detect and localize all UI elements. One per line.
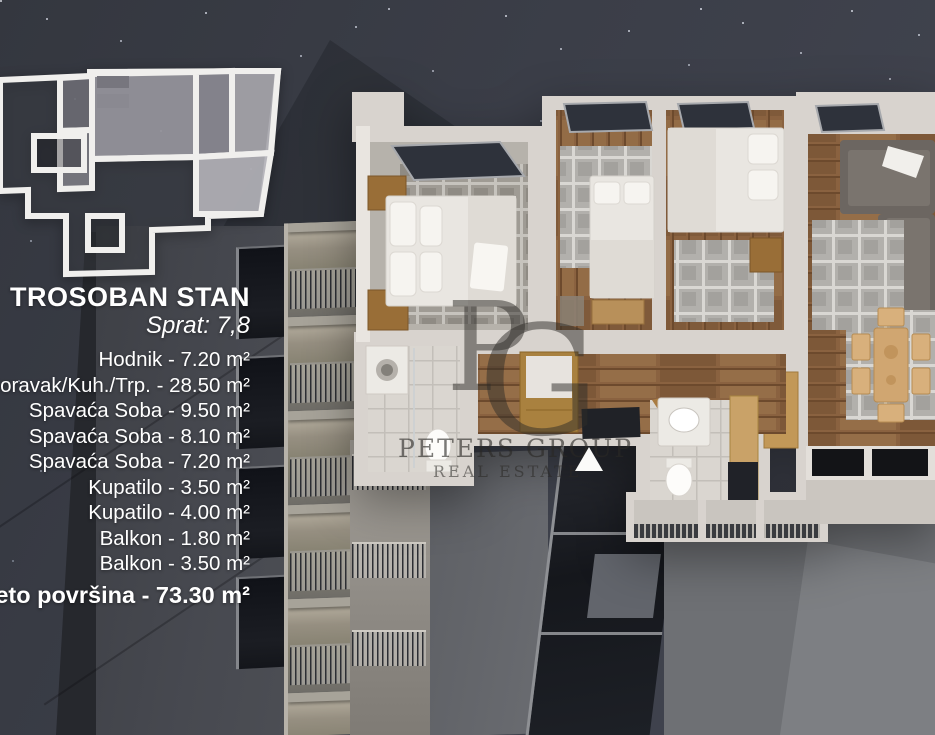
room-area-line: Balkon - 3.50 m² xyxy=(0,551,250,577)
double-bed xyxy=(668,128,784,232)
kitchen-counter xyxy=(806,446,935,524)
toilet xyxy=(666,458,692,496)
room-area-line: Balkon - 1.80 m² xyxy=(0,526,250,552)
room-area-line: ni Boravak/Kuh./Trp. - 28.50 m² xyxy=(0,373,250,399)
thumb-room xyxy=(60,76,92,131)
thumb-room xyxy=(232,71,278,155)
thumb-wall xyxy=(92,157,196,159)
watermark-tagline: REAL ESTATE xyxy=(433,462,573,481)
balcony-railing xyxy=(634,524,820,538)
bedroom-1-window xyxy=(392,142,524,180)
thumb-room xyxy=(196,153,271,214)
watermark-monogram: P G xyxy=(430,278,630,458)
thumb-room xyxy=(196,71,232,157)
thumb-top-window xyxy=(97,94,129,108)
room-area-line: Spavaća Soba - 8.10 m² xyxy=(0,424,250,450)
kitchen-sink xyxy=(872,449,928,476)
balcony-railing xyxy=(352,542,426,578)
room-area-line: Hodnik - 7.20 m² xyxy=(0,347,250,373)
bedroom-3-window xyxy=(678,102,754,130)
dining-set xyxy=(846,308,935,422)
thumb-window-box xyxy=(34,136,84,170)
balcony-railing xyxy=(352,630,426,666)
lit-window xyxy=(587,554,661,618)
washing-machine xyxy=(366,346,408,394)
dining-table xyxy=(874,328,908,402)
listing-promo-image: TROSOBAN STAN Sprat: 7,8 Hodnik - 7.20 m… xyxy=(0,0,935,735)
room-area-line: Spavaća Soba - 9.50 m² xyxy=(0,398,250,424)
total-area: pna neto površina - 73.30 m² xyxy=(0,582,250,608)
cooktop xyxy=(812,449,864,476)
unit-floor: Sprat: 7,8 xyxy=(0,313,250,339)
bedroom-3 xyxy=(666,102,784,330)
room-area-line: Spavaća Soba - 7.20 m² xyxy=(0,449,250,475)
stars xyxy=(0,0,2,2)
floorplan-thumbnail xyxy=(0,60,290,288)
room-area-line: Kupatilo - 4.00 m² xyxy=(0,500,250,526)
thumb-window-box xyxy=(88,216,122,250)
living-room-window xyxy=(816,104,884,132)
bedroom-2-window xyxy=(564,102,652,132)
unit-title: TROSOBAN STAN xyxy=(0,283,250,311)
unit-info-panel: TROSOBAN STAN Sprat: 7,8 Hodnik - 7.20 m… xyxy=(0,283,250,608)
sink xyxy=(658,398,710,446)
thumb-top-window xyxy=(97,76,129,88)
nightstand xyxy=(750,238,782,272)
apartment-balcony xyxy=(634,500,820,538)
triangle-mark xyxy=(575,447,603,471)
room-area-line: Kupatilo - 3.50 m² xyxy=(0,475,250,501)
